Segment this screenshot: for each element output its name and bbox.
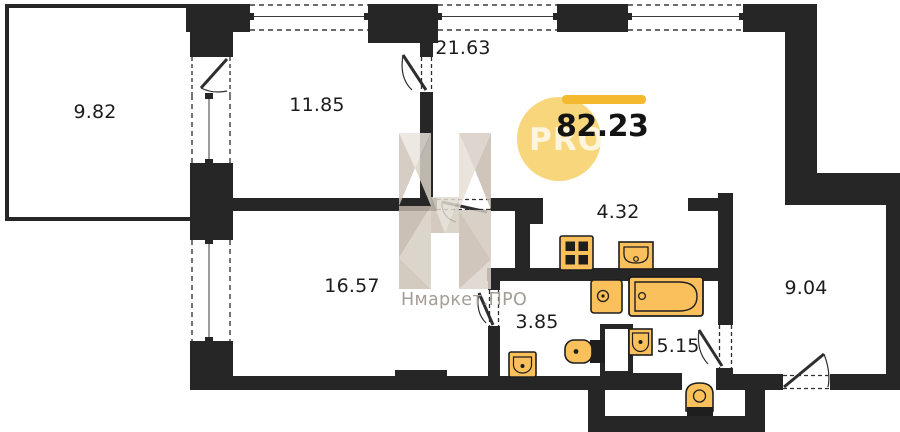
area-label-bathroom: 5.15	[656, 335, 699, 357]
area-label-hall: 9.04	[784, 277, 827, 299]
area-label-bedroom-2: 16.57	[324, 275, 379, 297]
area-label-balcony: 9.82	[73, 101, 116, 123]
area-label-bedroom-1: 11.85	[289, 94, 344, 116]
area-label-kitchen: 4.32	[596, 201, 639, 223]
logo-bar	[562, 95, 646, 104]
watermark-letter	[0, 0, 900, 432]
area-label-living: 21.63	[435, 37, 490, 59]
total-area-label: 82.23	[556, 109, 648, 144]
watermark-brand-text: Нмаркет.ПРО	[401, 290, 527, 310]
area-label-wc: 3.85	[515, 311, 558, 333]
floor-plan: PRO 82.23 Нмаркет.ПРО 9.82 11.85 21.63 1…	[0, 0, 900, 432]
